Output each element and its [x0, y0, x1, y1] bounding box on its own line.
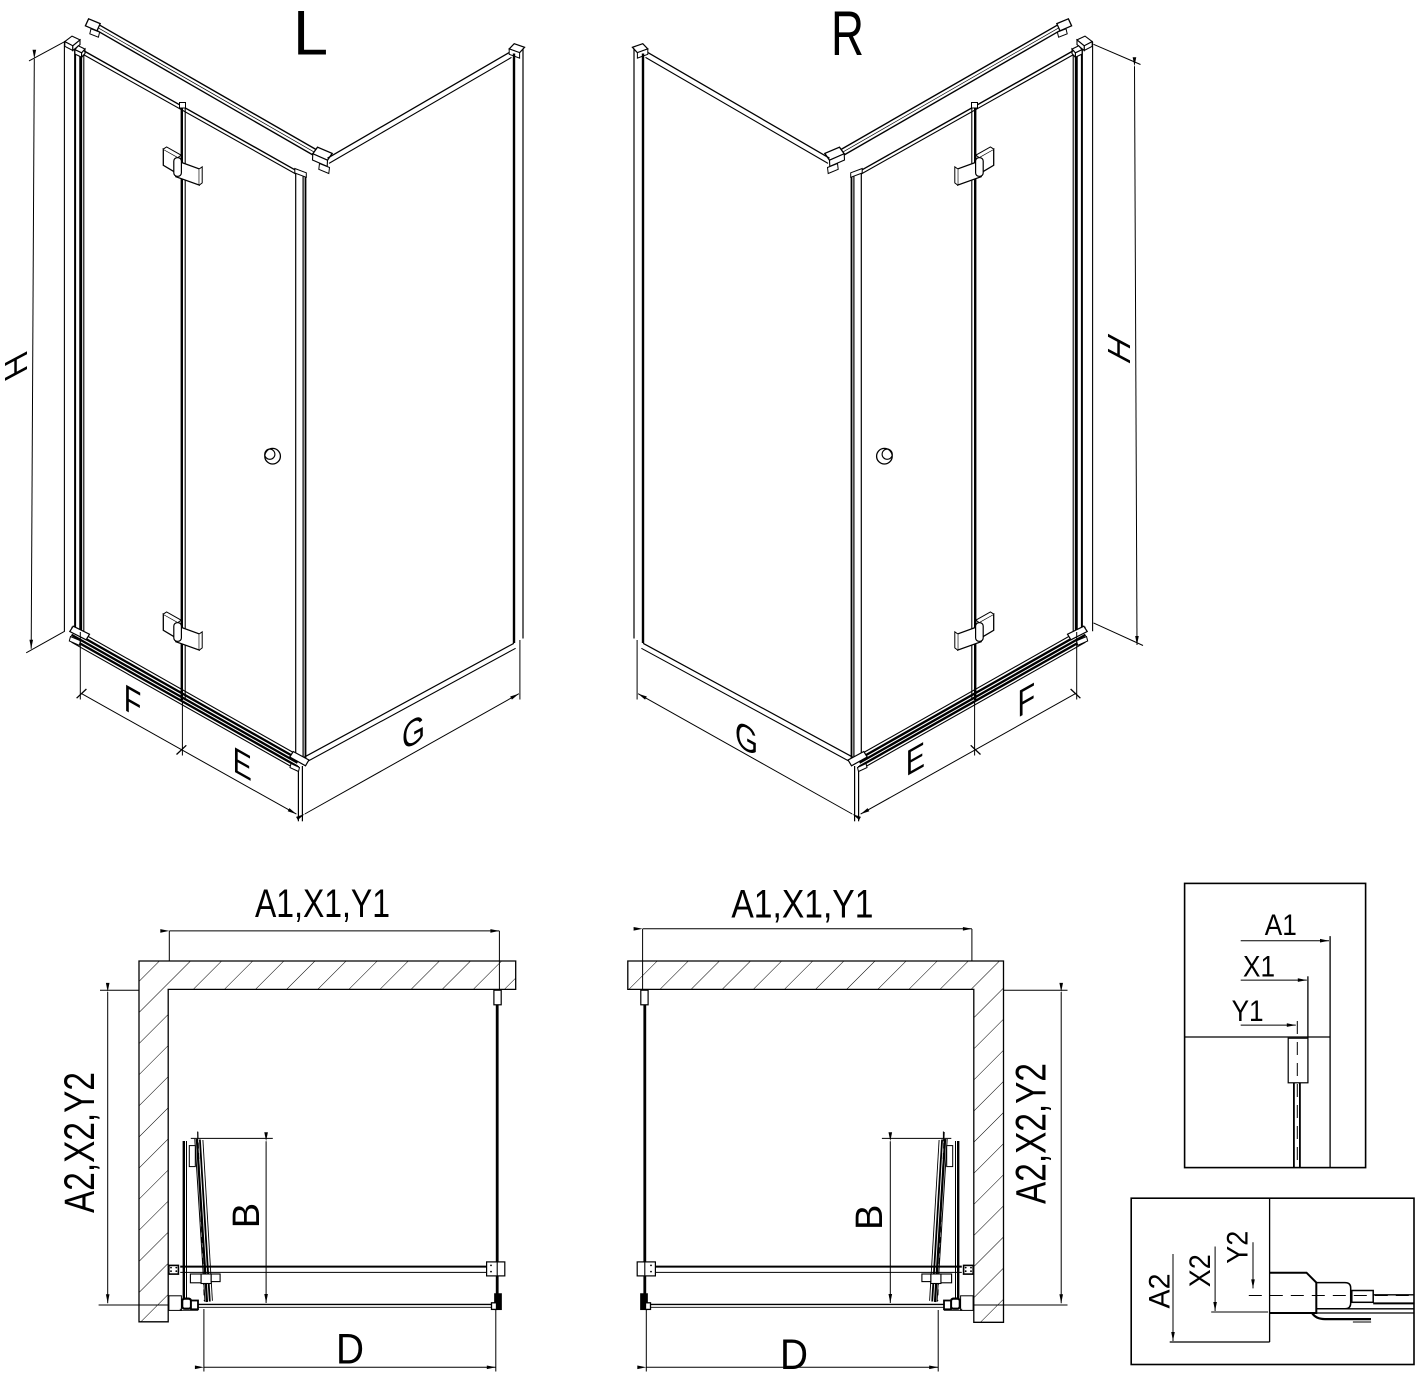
svg-text:B: B — [849, 1205, 891, 1230]
svg-text:A1,X1,Y1: A1,X1,Y1 — [255, 882, 390, 926]
svg-text:D: D — [336, 1325, 364, 1373]
svg-text:X2: X2 — [1184, 1254, 1217, 1287]
svg-text:A1: A1 — [1265, 909, 1297, 942]
svg-text:L: L — [293, 0, 328, 69]
svg-text:D: D — [780, 1331, 808, 1379]
svg-text:A1,X1,Y1: A1,X1,Y1 — [731, 883, 873, 927]
svg-text:X1: X1 — [1243, 950, 1275, 983]
svg-text:Y1: Y1 — [1232, 995, 1264, 1028]
svg-text:A2,X2,Y2: A2,X2,Y2 — [56, 1072, 104, 1213]
svg-text:A2,X2,Y2: A2,X2,Y2 — [1008, 1063, 1056, 1204]
svg-text:A2: A2 — [1143, 1274, 1176, 1309]
svg-text:Y2: Y2 — [1222, 1231, 1255, 1264]
svg-text:R: R — [831, 0, 864, 69]
svg-text:B: B — [226, 1203, 268, 1228]
